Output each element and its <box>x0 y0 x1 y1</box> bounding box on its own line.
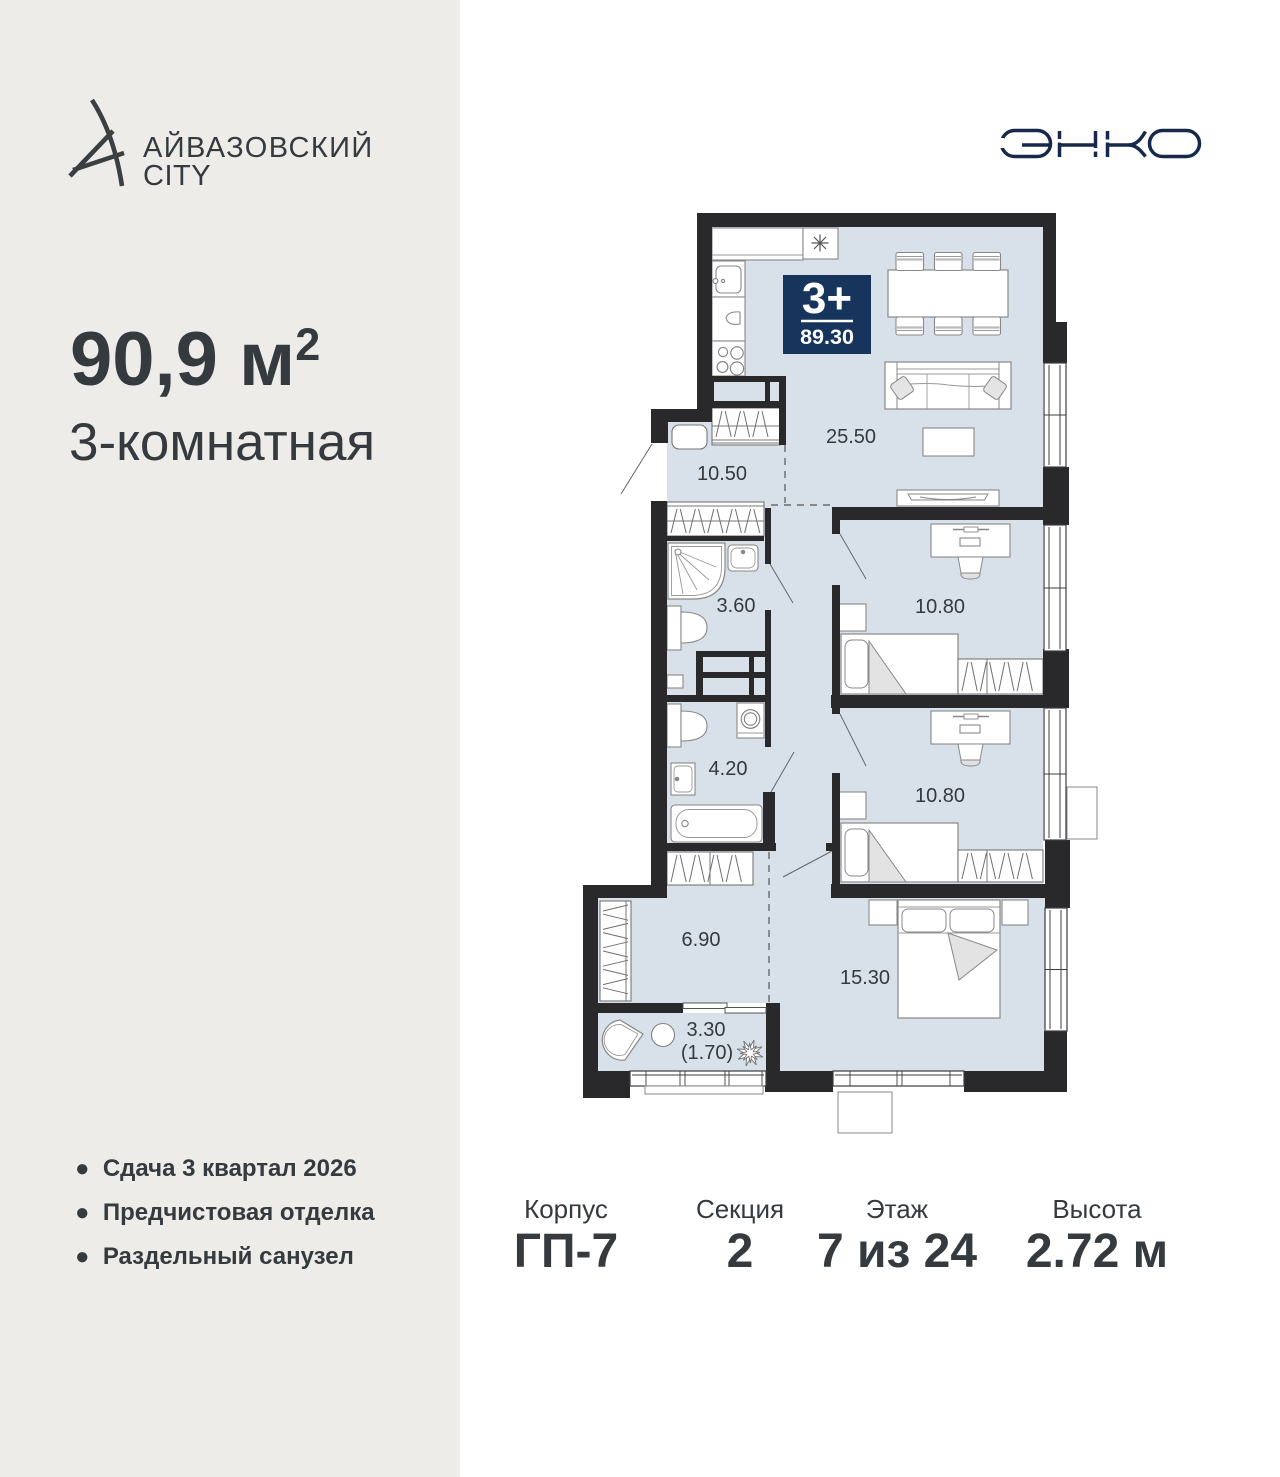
svg-text:(1.70): (1.70) <box>681 1042 733 1064</box>
svg-text:10.50: 10.50 <box>697 463 747 485</box>
svg-text:25.50: 25.50 <box>826 426 876 448</box>
svg-text:6.90: 6.90 <box>682 929 721 951</box>
svg-text:3.30: 3.30 <box>687 1019 726 1041</box>
svg-text:10.80: 10.80 <box>915 785 965 807</box>
svg-text:89.30: 89.30 <box>800 325 854 349</box>
svg-text:4.20: 4.20 <box>709 758 748 780</box>
svg-text:10.80: 10.80 <box>915 596 965 618</box>
svg-text:3+: 3+ <box>802 274 852 323</box>
svg-text:15.30: 15.30 <box>840 967 890 989</box>
svg-text:3.60: 3.60 <box>717 595 756 617</box>
